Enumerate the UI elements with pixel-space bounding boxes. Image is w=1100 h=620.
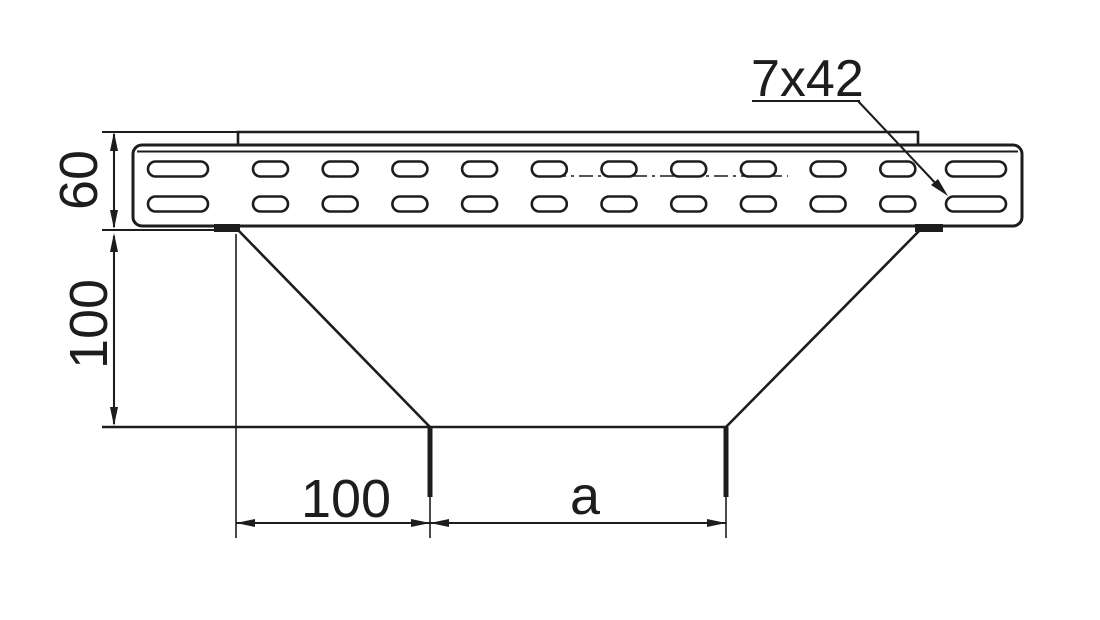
perforation-slot	[741, 197, 776, 212]
callout-label-7x42: 7x42	[751, 50, 864, 108]
arrowhead-down	[110, 407, 118, 426]
perforation-slot	[880, 197, 915, 212]
dimension-label-a: a	[570, 466, 601, 526]
perforation-slot	[392, 197, 427, 212]
arrowhead-up	[110, 233, 118, 252]
reducer-body	[102, 230, 920, 497]
arrowhead-left	[430, 519, 449, 527]
perforation-slot	[462, 197, 497, 212]
perforation-slot	[946, 162, 1006, 177]
perforation-slot	[880, 162, 915, 177]
dimension-rail-height: 60	[49, 132, 238, 230]
arrowhead-up	[110, 132, 118, 151]
arrowhead-down	[110, 210, 118, 229]
rear-flange-outline	[238, 132, 918, 145]
perforation-slots	[148, 162, 1006, 212]
slot-callout: 7x42	[751, 50, 948, 196]
drawing-canvas: 60 100 100 a 7x42	[0, 0, 1100, 620]
perforation-slot	[392, 162, 427, 177]
perforation-slot	[323, 197, 358, 212]
dimension-label-100-vertical: 100	[59, 279, 119, 369]
perforation-slot	[671, 197, 706, 212]
cable-tray-reducer-drawing: 60 100 100 a 7x42	[0, 0, 1100, 620]
arrowhead-right	[411, 519, 430, 527]
perforation-slot	[148, 162, 208, 177]
perforation-slot	[323, 162, 358, 177]
perforation-slot	[602, 162, 637, 177]
perforation-slot	[811, 162, 846, 177]
perforation-slot	[253, 162, 288, 177]
perforation-slot	[253, 197, 288, 212]
dimension-offset-width: 100	[236, 234, 430, 538]
perforation-slot	[741, 162, 776, 177]
side-rail	[133, 145, 1022, 226]
perforation-slot	[811, 197, 846, 212]
perforation-slot	[602, 197, 637, 212]
weld-mark-left	[214, 224, 240, 232]
reducer-left-edge	[238, 230, 430, 427]
dimension-label-60: 60	[49, 150, 109, 210]
perforation-slot	[946, 197, 1006, 212]
rear-flange-strip	[238, 132, 918, 145]
dimension-outlet-width: a	[430, 466, 726, 538]
perforation-slot	[532, 162, 567, 177]
arrowhead-left	[236, 519, 255, 527]
reducer-right-edge	[726, 230, 920, 427]
perforation-slot	[148, 197, 208, 212]
perforation-slot	[532, 197, 567, 212]
perforation-slot	[671, 162, 706, 177]
rail-outline	[133, 145, 1022, 226]
dimension-label-100-bottom: 100	[301, 469, 391, 529]
arrowhead-right	[707, 519, 726, 527]
perforation-slot	[462, 162, 497, 177]
dimension-drop-height: 100	[59, 233, 119, 426]
